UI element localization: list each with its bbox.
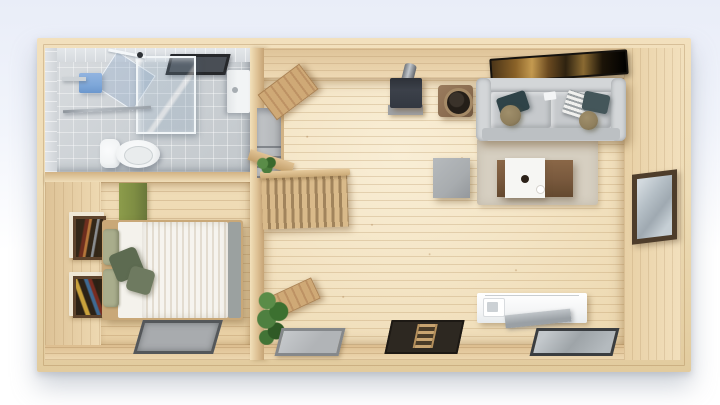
sofa-front-edge <box>482 128 620 140</box>
blue-towel <box>79 73 102 93</box>
ladder-floor-hatch <box>384 320 464 354</box>
floor-plan-render <box>0 0 720 405</box>
bedroom-left-wall <box>45 182 101 360</box>
shower-enclosure <box>136 56 196 134</box>
toilet-bowl <box>116 140 160 168</box>
headboard-panel <box>119 183 147 221</box>
coffee-table-tray <box>505 158 545 198</box>
bathroom-wall-left <box>45 48 57 172</box>
gray-floor-hatch <box>275 328 346 356</box>
shower-head <box>137 52 143 58</box>
stair-balustrade <box>261 173 349 230</box>
round-cushion-2 <box>579 111 598 130</box>
bathroom-bedroom-wall <box>45 172 250 182</box>
sofa-backrest <box>479 78 623 92</box>
window-glass <box>637 175 672 239</box>
kitchen-floor-hatch <box>530 328 620 356</box>
bowl <box>521 175 529 183</box>
hatch-ladder <box>413 324 438 348</box>
sofa <box>476 78 626 141</box>
wall-shelf <box>62 77 86 81</box>
tv-remote <box>544 91 557 101</box>
kitchen-appliance <box>483 298 505 317</box>
wood-stove <box>390 78 422 108</box>
round-top-side-table <box>438 85 473 117</box>
framed-picture-2 <box>69 272 104 316</box>
cup <box>536 185 545 194</box>
picture-window <box>632 169 677 245</box>
bedroom-floor-mat <box>133 320 223 354</box>
sink-cabinet <box>227 70 250 113</box>
gray-ottoman <box>433 158 470 198</box>
round-cushion-1 <box>500 105 521 126</box>
double-bed <box>102 220 243 320</box>
cabin-house <box>37 38 691 372</box>
newel-plant <box>256 157 278 173</box>
ribbed-duvet <box>142 222 228 318</box>
gray-bed-runner <box>228 222 241 318</box>
framed-picture-1 <box>69 212 104 258</box>
